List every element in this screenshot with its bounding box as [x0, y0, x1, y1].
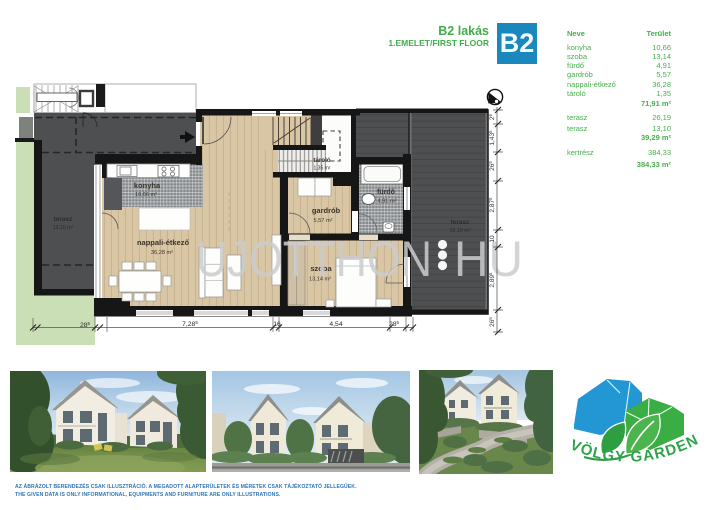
- svg-text:4,91 m²: 4,91 m²: [378, 199, 397, 205]
- svg-text:13,10 m²: 13,10 m²: [53, 225, 74, 231]
- svg-text:265: 265: [488, 317, 496, 327]
- svg-text:2,875: 2,875: [488, 197, 496, 213]
- svg-text:36,28 m²: 36,28 m²: [151, 250, 173, 256]
- svg-text:nappali-étkező: nappali-étkező: [137, 238, 190, 247]
- svg-text:fürdő: fürdő: [377, 189, 395, 196]
- svg-text:7,285: 7,285: [182, 320, 198, 328]
- svg-text:terasz: terasz: [54, 216, 74, 223]
- svg-text:10: 10: [489, 235, 496, 243]
- svg-text:4,54: 4,54: [329, 321, 342, 328]
- svg-text:10,66 m²: 10,66 m²: [135, 192, 157, 198]
- svg-text:16: 16: [273, 321, 281, 328]
- svg-text:gardrób: gardrób: [312, 206, 341, 215]
- svg-text:285: 285: [389, 320, 400, 328]
- svg-text:1,35 m²: 1,35 m²: [314, 166, 331, 172]
- svg-text:tároló: tároló: [313, 157, 330, 164]
- svg-text:terasz: terasz: [451, 219, 471, 226]
- svg-text:5,57 m²: 5,57 m²: [314, 218, 333, 224]
- svg-text:1,435: 1,435: [488, 130, 496, 146]
- svg-text:konyha: konyha: [134, 181, 161, 190]
- svg-text:265: 265: [488, 161, 496, 171]
- svg-text:26: 26: [488, 113, 496, 120]
- svg-text:UJOTTHON: UJOTTHON: [196, 231, 432, 287]
